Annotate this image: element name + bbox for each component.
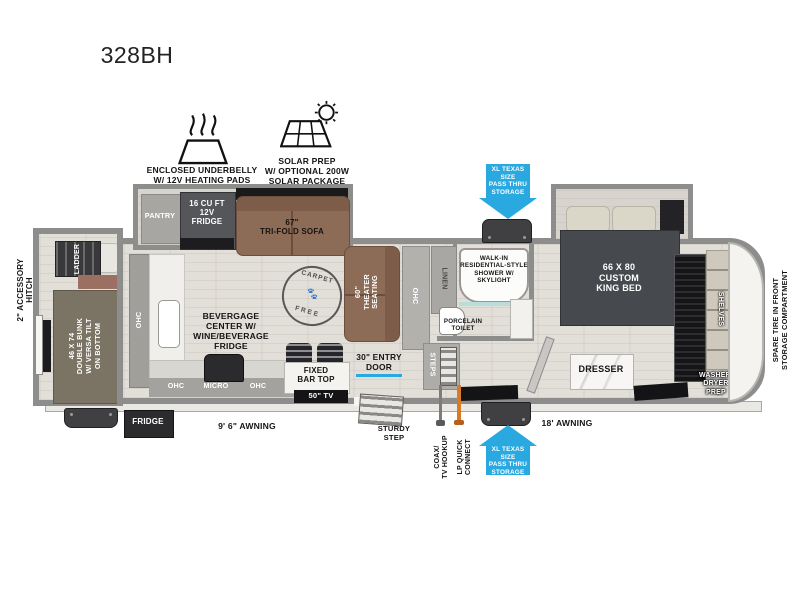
- tv-50-label: 50" TV: [294, 392, 348, 401]
- sofa-label: 67" TRI-FOLD SOFA: [236, 218, 348, 237]
- living-ohc-label: OHC: [410, 248, 420, 344]
- bath-vanity: [510, 299, 533, 339]
- pass-thru-top-label: XL TEXAS SIZE PASS THRU STORAGE: [484, 166, 532, 196]
- spare-tire-label: SPARE TIRE IN FRONT STORAGE COMPARTMENT: [771, 245, 791, 395]
- solar-prep-icon: [280, 100, 342, 161]
- bar-stool: [317, 343, 343, 362]
- floor-mat: [460, 385, 518, 401]
- beverage-center-label: BEVERGAGE CENTER W/ WINE/BEVERAGE FRIDGE: [171, 311, 291, 352]
- entry-door-measure-line: [356, 374, 402, 377]
- dresser-label: DRESSER: [570, 364, 632, 375]
- steps-treads: [440, 347, 457, 386]
- pass-thru-door-bottom: [481, 402, 531, 426]
- shower-label: WALK-IN RESIDENTIAL-STYLE SHOWER W/ SKYL…: [457, 255, 531, 285]
- theater-label: 60" THEATER SEATING: [353, 247, 381, 337]
- accessory-hitch-label: 2" ACCESSORY HITCH: [14, 235, 36, 345]
- entry-stairs: [358, 394, 404, 427]
- bunk-bedding: [78, 275, 118, 289]
- page-title: 328BH: [82, 42, 192, 69]
- pass-thru-arrow-up-icon: [479, 425, 537, 446]
- stove: [204, 354, 244, 382]
- bed-pillow: [566, 206, 610, 233]
- awning-rear-label: 9' 6" AWNING: [197, 421, 297, 431]
- front-cap: [728, 242, 764, 402]
- bunk-room: LADDER 46 X 74 DOUBLE BUNK W/ VERSA TILT…: [33, 228, 123, 406]
- lp-quick-connect-label: LP QUICK CONNECT: [456, 413, 474, 501]
- steps-label: STEPS: [427, 343, 436, 387]
- fridge-12v-base: [180, 238, 234, 249]
- pass-thru-bottom-label: XL TEXAS SIZE PASS THRU STORAGE: [484, 446, 532, 476]
- solar-label: SOLAR PREP W/ OPTIONAL 200W SOLAR PACKAG…: [237, 156, 377, 186]
- toilet-label: PORCELAIN TOILET: [443, 318, 483, 333]
- king-bed-label: 66 X 80 CUSTOM KING BED: [560, 262, 678, 294]
- coax-label: COAX/ TV HOOKUP: [433, 413, 451, 501]
- pantry-label: PANTRY: [141, 212, 179, 221]
- hitch-bar: [35, 315, 43, 375]
- bedroom-slide-tv: [660, 200, 684, 234]
- rear-storage-door: [64, 408, 118, 428]
- ohc-a-label: OHC: [160, 382, 192, 390]
- pass-thru-door-top: [482, 219, 532, 243]
- bunk-label: 46 X 74 DOUBLE BUNK W/ VERSA TILT ON BOT…: [67, 292, 103, 400]
- bar-stool: [286, 343, 312, 362]
- sturdy-step-label: STURDY STEP: [368, 425, 420, 443]
- linen-label: LINEN: [439, 249, 448, 309]
- kitchen-ohc-label: OHC: [134, 275, 144, 365]
- floorplan-page: { "title": "328BH", "colors": { "accent_…: [0, 0, 800, 600]
- pass-thru-arrow-down-icon: [479, 198, 537, 219]
- fixed-bar-top-label: FIXED BAR TOP: [284, 366, 348, 385]
- ohc-b-label: OHC: [242, 382, 274, 390]
- exterior-fridge-label: FRIDGE: [124, 417, 172, 426]
- bunk-pillow: [99, 243, 118, 273]
- bed-pillow: [612, 206, 656, 233]
- fridge-12v-label: 16 CU FT 12V FRIDGE: [180, 199, 234, 227]
- entry-door-label: 30" ENTRY DOOR: [349, 353, 409, 373]
- micro-label: MICRO: [198, 382, 234, 390]
- shelves-label: SHELVES: [716, 254, 726, 364]
- heating-pads-icon: [176, 108, 230, 171]
- wardrobe: [674, 254, 706, 382]
